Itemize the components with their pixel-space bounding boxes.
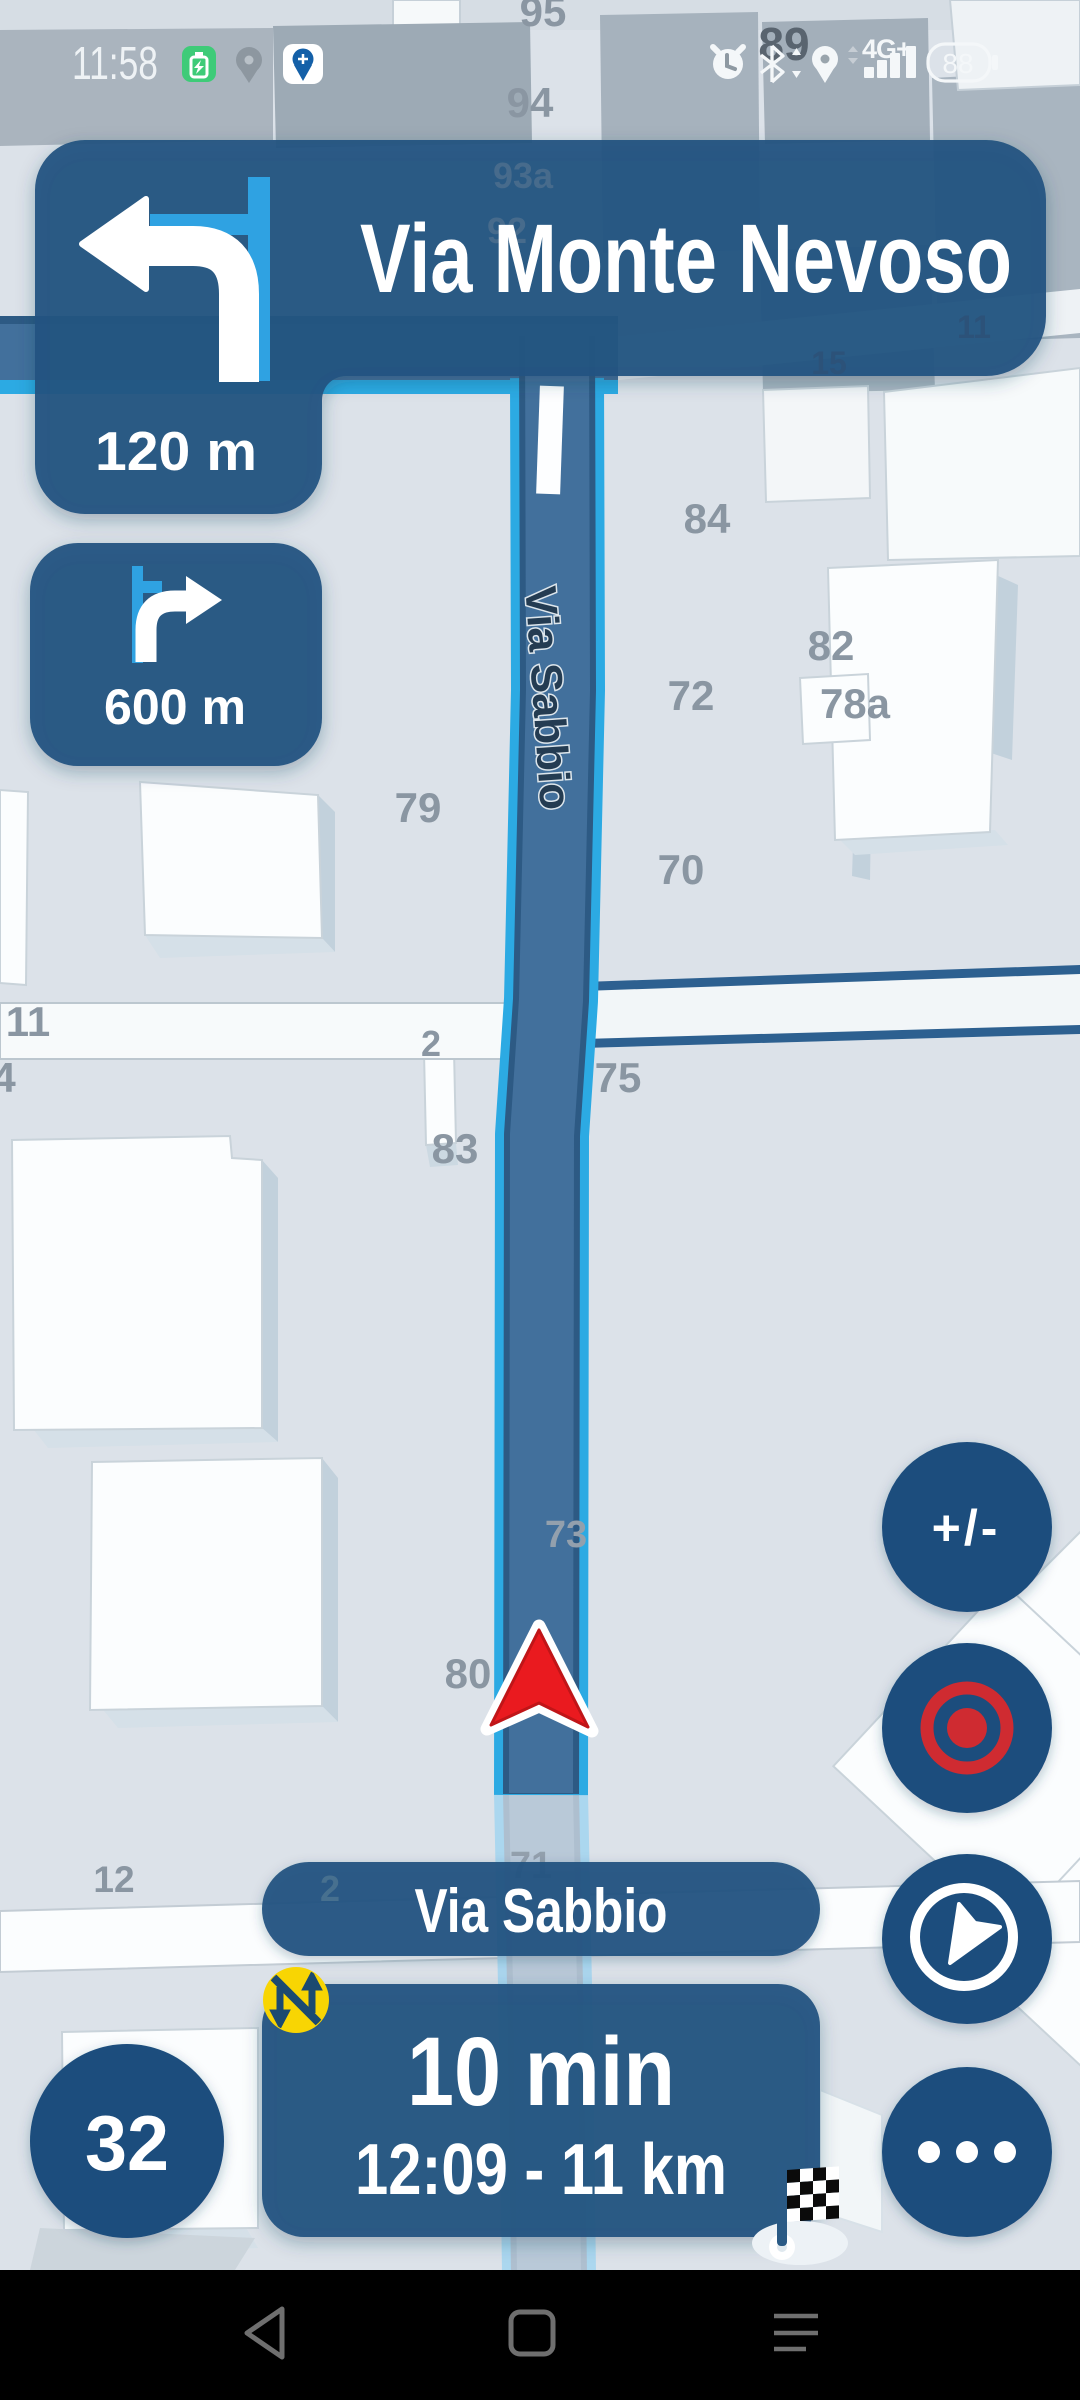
- svg-text:93a: 93a: [493, 155, 554, 196]
- svg-text:10 min: 10 min: [407, 2017, 675, 2126]
- svg-text:4: 4: [0, 1054, 16, 1101]
- svg-text:75: 75: [595, 1054, 642, 1101]
- svg-text:78a: 78a: [820, 680, 891, 727]
- svg-text:2: 2: [421, 1023, 441, 1064]
- svg-text:Via Monte Nevoso: Via Monte Nevoso: [360, 204, 1012, 313]
- svg-text:120 m: 120 m: [95, 420, 257, 482]
- svg-text:89: 89: [758, 18, 809, 70]
- svg-text:600 m: 600 m: [104, 679, 246, 735]
- svg-text:70: 70: [658, 846, 705, 893]
- svg-text:83: 83: [432, 1125, 479, 1172]
- svg-text:94: 94: [507, 79, 554, 126]
- svg-text:88: 88: [942, 48, 973, 79]
- svg-text:+/-: +/-: [932, 1500, 1001, 1556]
- svg-text:32: 32: [85, 2099, 169, 2187]
- svg-text:11: 11: [6, 998, 50, 1045]
- svg-text:79: 79: [395, 784, 442, 831]
- svg-text:72: 72: [668, 672, 715, 719]
- svg-text:73: 73: [545, 1514, 587, 1556]
- svg-text:82: 82: [808, 622, 855, 669]
- svg-text:12:09 - 11 km: 12:09 - 11 km: [355, 2130, 727, 2210]
- svg-text:80: 80: [445, 1650, 492, 1697]
- svg-text:84: 84: [684, 495, 731, 542]
- svg-text:4G+: 4G+: [862, 34, 911, 64]
- svg-text:Via Sabbio: Via Sabbio: [415, 1877, 668, 1946]
- svg-text:15: 15: [811, 345, 847, 381]
- svg-text:11:58: 11:58: [72, 37, 158, 89]
- svg-text:11: 11: [957, 309, 991, 345]
- svg-text:2: 2: [320, 1868, 340, 1909]
- svg-text:12: 12: [93, 1859, 134, 1900]
- svg-text:95: 95: [520, 0, 567, 35]
